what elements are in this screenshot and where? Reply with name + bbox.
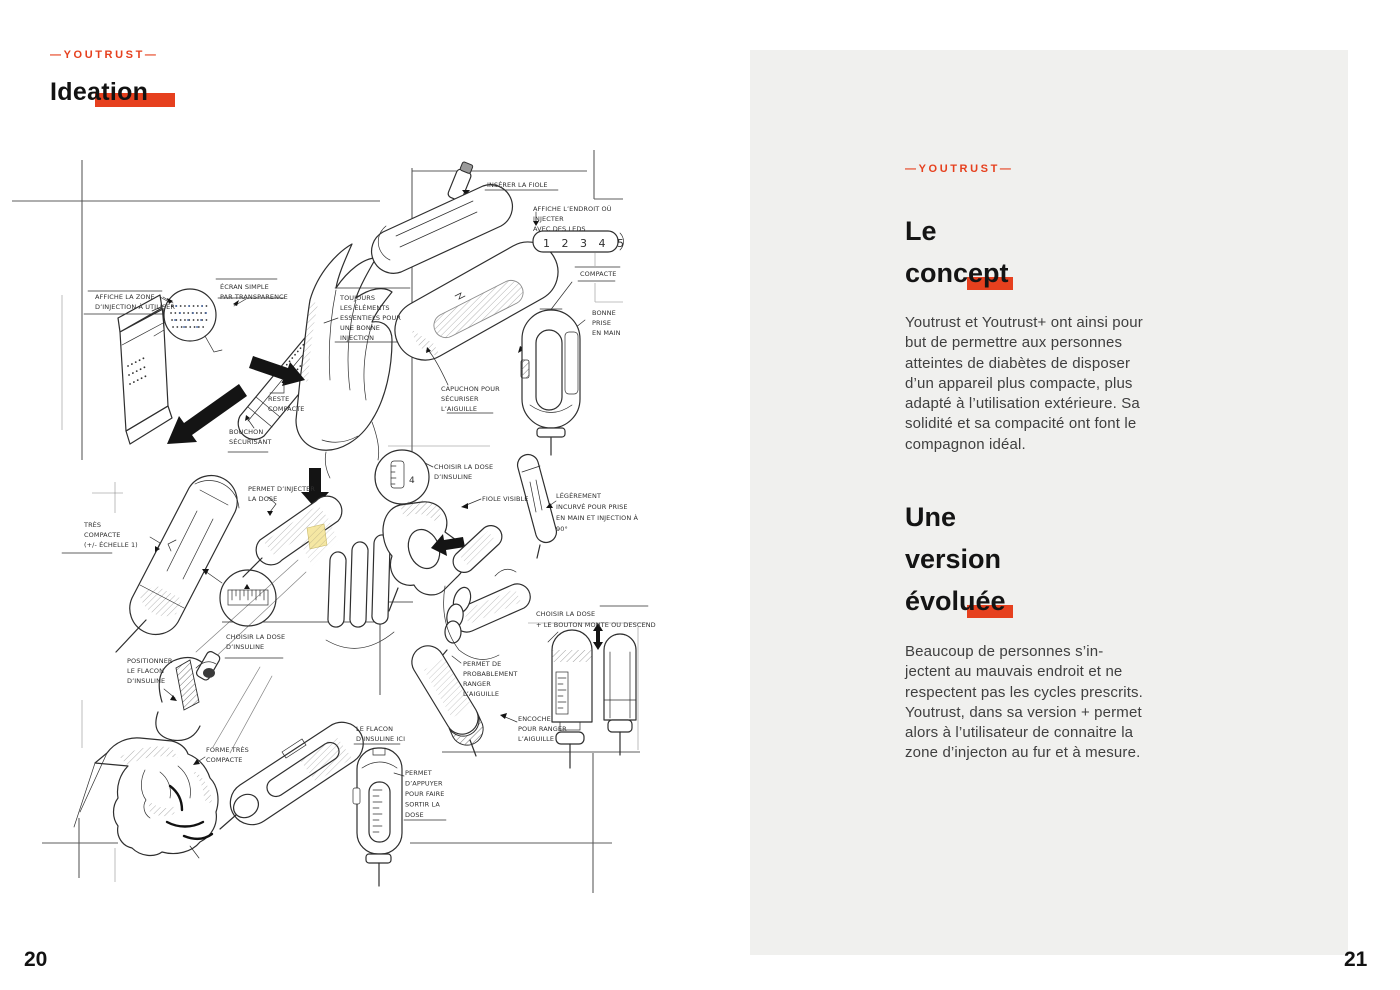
annotation-fiole-visible: FIOLE VISIBLE xyxy=(482,495,528,503)
annotation-choisir2: CHOISIR LA DOSED’INSULINE xyxy=(434,463,493,481)
led-scale-numbers: 1 2 3 4 5 xyxy=(543,237,628,250)
annotation-ecran: ÉCRAN SIMPLEPAR TRANSPARENCE xyxy=(220,282,288,301)
version-paragraph: Beaucoup de personnes s’in- jectent au m… xyxy=(905,642,1205,764)
heading-le-concept: Le concept xyxy=(905,210,1009,294)
annotation-tres-compacte: TRÈSCOMPACTE(+/- ÉCHELLE 1) xyxy=(83,520,138,549)
annotation-prise: BONNEPRISEEN MAIN xyxy=(592,309,621,337)
portfolio-spread: —YOUTRUST— Ideation xyxy=(0,0,1400,990)
annotation-choisir3: CHOISIR LA DOSE+ LE BOUTON MONTE OU DESC… xyxy=(536,610,656,629)
annotation-appuyer: PERMETD’APPUYERPOUR FAIRESORTIR LADOSE xyxy=(405,769,445,819)
annotation-positionner: POSITIONNERLE FLACOND’INSULINE xyxy=(127,657,173,685)
page-number-left: 20 xyxy=(24,948,47,972)
page-number-right: 21 xyxy=(1344,948,1367,972)
annotation-compacte: COMPACTE xyxy=(580,270,617,278)
heading-une-version-evoluee: Une version évoluée xyxy=(905,496,1006,622)
annotation-choisir1: CHOISIR LA DOSED’INSULINE xyxy=(226,633,285,651)
concept-panel: —YOUTRUST— Le concept Youtrust et Youtru… xyxy=(750,50,1348,955)
annotation-ranger: PERMET DEPROBABLEMENTRANGERL’AIGUILLE xyxy=(463,660,517,698)
annotation-incurve: LÉGÈREMENTINCURVÉ POUR PRISEEN MAIN ET I… xyxy=(556,491,638,533)
dose-value: 4 xyxy=(409,476,415,486)
annotation-zone: AFFICHE LA ZONED’INJECTION À UTILISER xyxy=(95,293,175,311)
annotation-capuchon: CAPUCHON POURSÉCURISERL’AIGUILLE xyxy=(441,385,500,413)
page-title: Ideation xyxy=(50,78,148,107)
concept-paragraph: Youtrust et Youtrust+ ont ainsi pour but… xyxy=(905,313,1205,455)
annotation-flacon-ici: LE FLACOND’INSULINE ICI xyxy=(356,725,405,743)
annotation-inserer: INSÉRER LA FIOLE xyxy=(487,180,548,189)
sketch-compact-grip xyxy=(74,722,446,886)
sketch-annotations: AFFICHE LA ZONED’INJECTION À UTILISER ÉC… xyxy=(83,180,656,819)
sketch-dose-selection xyxy=(62,468,394,753)
brand-logo-right: —YOUTRUST— xyxy=(905,163,1014,175)
annotation-forme: FORME TRÈSCOMPACTE xyxy=(206,745,249,764)
annotation-endroit: AFFICHE L’ENDROIT OÙINJECTERAVEC DES LED… xyxy=(533,204,612,233)
ideation-sketch: 1 2 3 4 5 xyxy=(0,0,700,990)
